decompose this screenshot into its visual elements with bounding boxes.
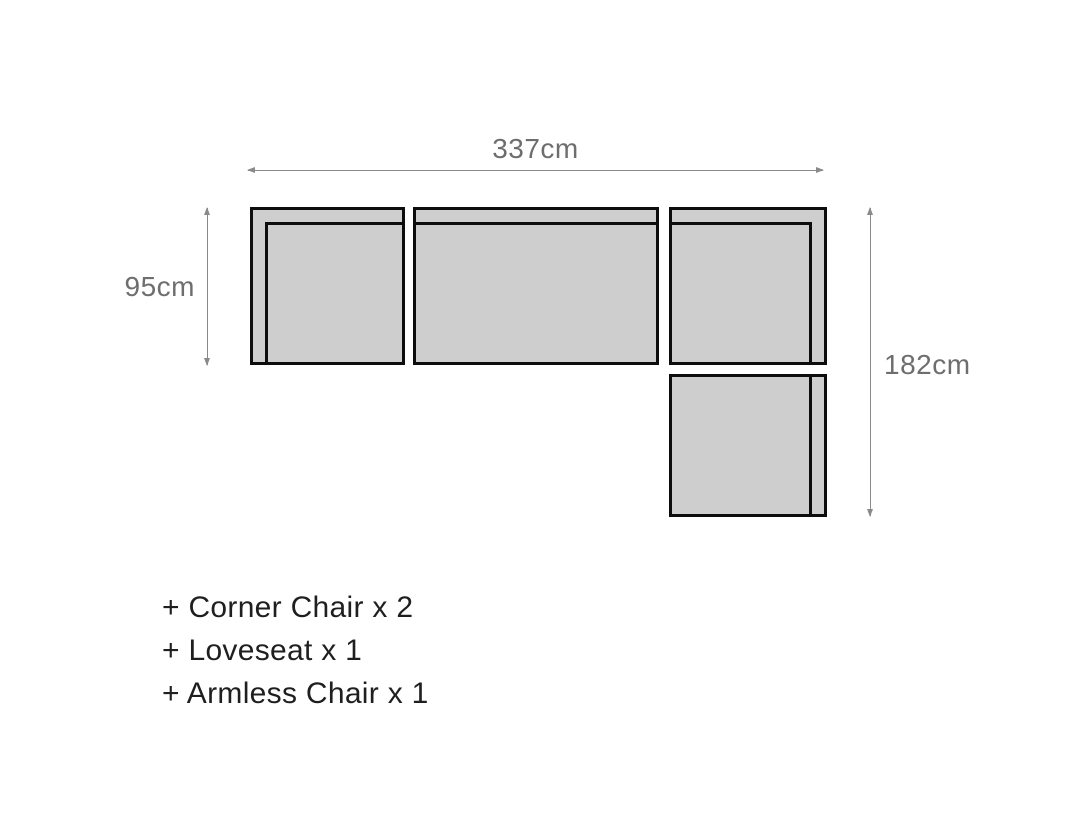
sofa-dimension-diagram: 337cm 95cm 182cm + Corner Chair x 2 + Lo… <box>0 0 1080 831</box>
width-dimension-arrow <box>248 170 823 171</box>
corner-chair-right-shape <box>669 207 827 365</box>
backrest-line <box>672 222 812 225</box>
height-dimension-arrow <box>870 208 871 516</box>
component-list: + Corner Chair x 2 + Loveseat x 1 + Arml… <box>162 586 429 715</box>
depth-dimension-arrow <box>207 208 208 365</box>
backrest-line <box>809 377 812 514</box>
list-item: + Armless Chair x 1 <box>162 672 429 715</box>
list-item: + Corner Chair x 2 <box>162 586 429 629</box>
depth-dimension-label: 95cm <box>55 271 195 303</box>
backrest-line <box>265 222 402 225</box>
armless-chair-shape <box>669 374 827 517</box>
width-dimension-label: 337cm <box>248 133 823 165</box>
height-dimension-label: 182cm <box>884 349 971 381</box>
corner-chair-left-shape <box>250 207 405 365</box>
list-item: + Loveseat x 1 <box>162 629 429 672</box>
backrest-line <box>416 222 656 225</box>
armrest-line <box>265 222 268 362</box>
loveseat-shape <box>413 207 659 365</box>
armrest-line <box>809 222 812 362</box>
